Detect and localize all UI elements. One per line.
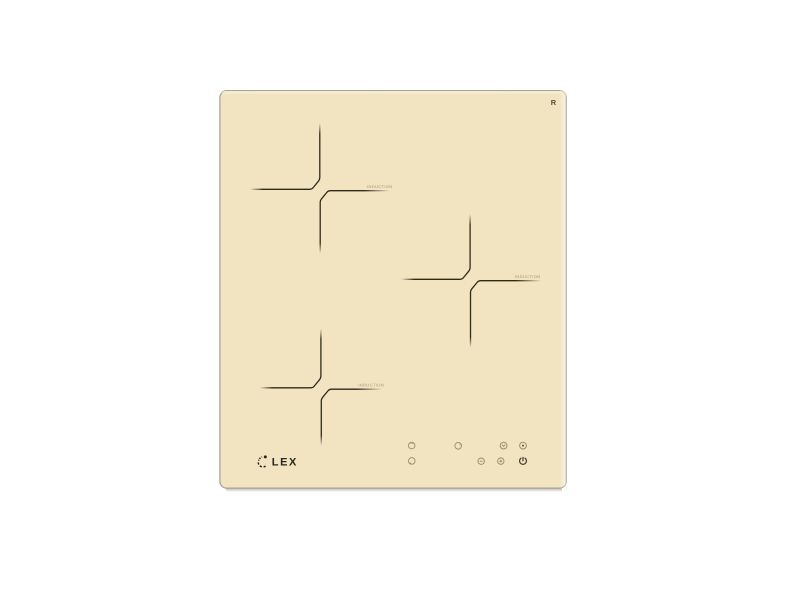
svg-text:LEX: LEX — [272, 456, 298, 468]
svg-text:INDUCTION: INDUCTION — [515, 274, 541, 279]
svg-text:INDUCTION: INDUCTION — [358, 382, 384, 387]
svg-text:INDUCTION: INDUCTION — [367, 184, 393, 189]
svg-text:R: R — [551, 98, 557, 107]
